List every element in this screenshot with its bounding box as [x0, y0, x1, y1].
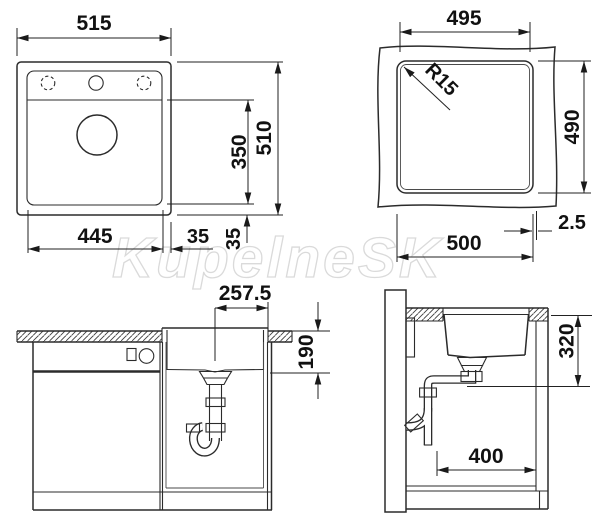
- dim-257-5-label: 257.5: [219, 282, 272, 305]
- dim-35h-label: 35: [187, 226, 209, 248]
- dim-500-label: 500: [446, 232, 481, 255]
- dim-490-label: 490: [561, 109, 584, 144]
- dim-495-label: 495: [446, 7, 481, 30]
- dim-400-label: 400: [468, 445, 503, 468]
- watermark-text: KupelneSK: [112, 226, 444, 290]
- dim-350-label: 350: [228, 134, 251, 169]
- dim-190-label: 190: [295, 334, 318, 369]
- dim-2-5-label: 2.5: [558, 212, 586, 234]
- dim-515-label: 515: [76, 12, 111, 35]
- dim-35v-label: 35: [223, 228, 245, 250]
- dim-510-label: 510: [253, 120, 276, 155]
- drawing-canvas: KupelneSK 515 510 350 35: [0, 0, 600, 520]
- dim-445-label: 445: [77, 225, 112, 248]
- sink-technical-drawing: KupelneSK 515 510 350 35: [0, 0, 600, 520]
- dim-320-label: 320: [556, 323, 579, 358]
